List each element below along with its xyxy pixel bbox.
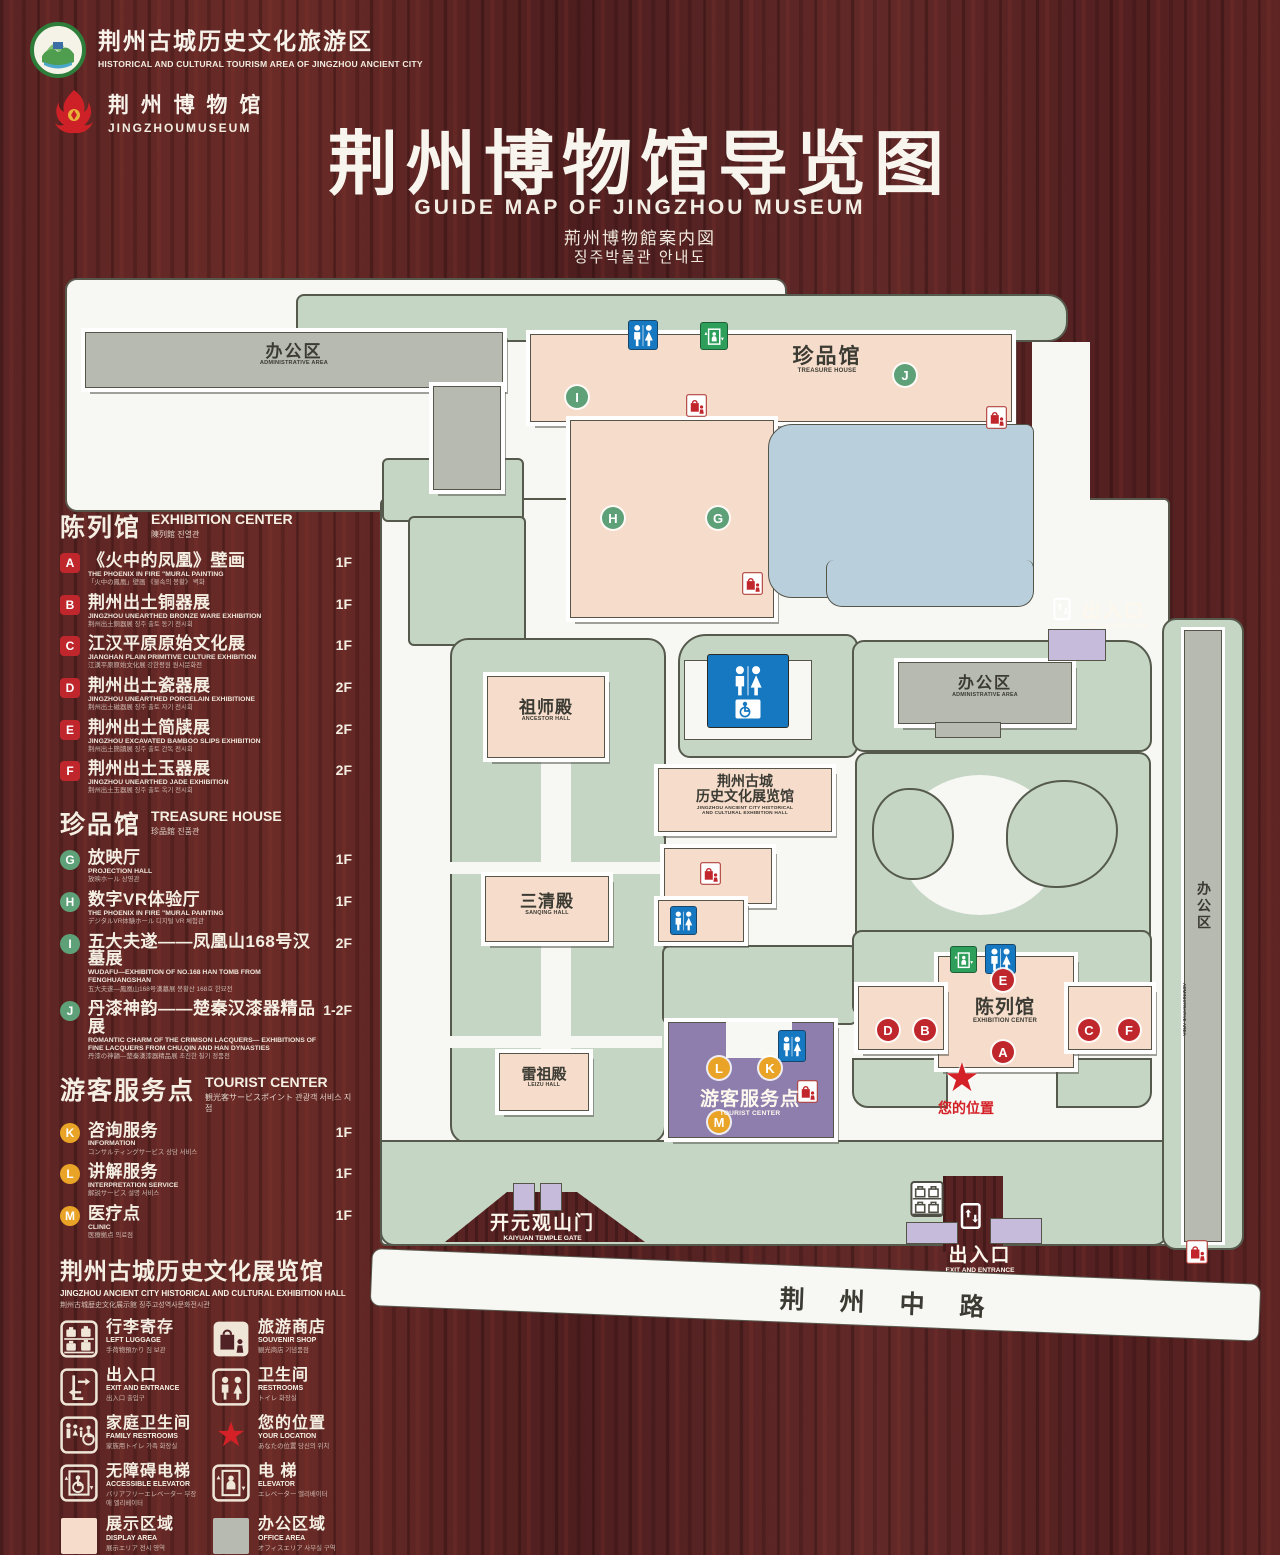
legend-row: F荆州出土玉器展JINGZHOU UNEARTHED JADE EXHIBITI… (60, 760, 352, 795)
legend-icon-label-en: DISPLAY AREA (106, 1535, 174, 1542)
legend-row-title-en: PROJECTION HALL (88, 868, 318, 876)
legend-icon-label-en: LEFT LUGGAGE (106, 1337, 174, 1344)
legend-row: K咨询服务INFORMATIONコンサルティングサービス 상담 서비스1F (60, 1122, 352, 1157)
legend-row-title: 江汉平原原始文化展 (88, 635, 318, 653)
exhibition-center-wing-right (1068, 986, 1152, 1050)
road-label: 荆 州 中 路 (779, 1279, 999, 1324)
legend-hall-title-sub: 荆州古城歴史文化展示館 징주고성역사문화전시관 (60, 1300, 352, 1310)
map-marker-A: A (992, 1041, 1014, 1063)
legend-icon-label-sub: エレベーター 엘리베이터 (258, 1489, 328, 1498)
exit-entrance-icon (60, 1368, 98, 1406)
souvenir-shop-icon (742, 572, 763, 595)
souvenir-shop-icon (1186, 1240, 1208, 1264)
tourism-area-logo: 荆州古城历史文化旅游区 HISTORICAL AND CULTURAL TOUR… (30, 22, 423, 78)
legend-icon-label-sub: 家族用トイレ 가족 화장실 (106, 1441, 191, 1450)
map-marker-J: J (894, 364, 916, 386)
legend-icon-label: 您的位置 (258, 1416, 329, 1433)
legend-row: B荆州出土铜器展JINGZHOU UNEARTHED BRONZE WARE E… (60, 594, 352, 629)
admin-mid-label-en: ADMINISTRATIVE AREA (899, 693, 1071, 699)
exit-entrance-icon (957, 1201, 987, 1231)
legend-row-text: 《火中的凤凰》壁画THE PHOENIX IN FIRE "MURAL PAIN… (80, 552, 318, 587)
legend-section-heading: 陈列馆EXHIBITION CENTER陳列館 진열관 (60, 508, 352, 544)
legend-row-title-sub: 「火中の鳳凰」壁画 《불속의 봉황》 벽화 (88, 579, 318, 587)
admin-building-right-strip: 办公区 ADMINISTRATIVE AREA (1184, 630, 1222, 1242)
legend-row-title: 放映厅 (88, 849, 318, 867)
elevator-icon (950, 946, 977, 973)
legend-row-floor: 2F (318, 935, 352, 951)
legend-icon-text: 行李寄存LEFT LUGGAGE手荷物預かり 짐 보관 (106, 1320, 174, 1355)
road: 荆 州 中 路 (370, 1248, 1262, 1342)
legend-icon-label-en: ACCESSIBLE ELEVATOR (106, 1481, 200, 1488)
legend-icon-label-en: FAMILY RESTROOMS (106, 1433, 191, 1440)
legend-icon-item: 电 梯ELEVATORエレベーター 엘리베이터 (212, 1464, 352, 1508)
legend-icon-item: ★您的位置YOUR LOCATIONあなたの位置 당신의 위치 (212, 1416, 352, 1454)
city-exhibition-hall-label-en2: AND CULTURAL EXHIBITION HALL (659, 811, 831, 816)
legend-row-title: 荆州出土玉器展 (88, 760, 318, 778)
office-area-icon (212, 1517, 250, 1555)
gate-label: 开元观山门 (455, 1208, 630, 1235)
garden-island (872, 788, 954, 880)
legend-row-title-sub: 医療拠点 의료점 (88, 1232, 318, 1240)
city-exhibition-hall-building: 荆州古城 历史文化展览馆 JINGZHOU ANCIENT CITY HISTO… (658, 768, 832, 832)
legend-icon-label: 电 梯 (258, 1464, 328, 1481)
exhibition-center-wing-left (858, 986, 944, 1050)
page-title-en: GUIDE MAP OF JINGZHOU MUSEUM (0, 196, 1280, 220)
legend-row-badge: F (60, 761, 80, 781)
legend-row-badge: D (60, 678, 80, 698)
ancestor-hall-label: 祖师殿 (488, 699, 604, 717)
legend-icon-label: 行李寄存 (106, 1320, 174, 1337)
exit-top-label: 出入口 (1082, 596, 1149, 623)
legend-row-text: 江汉平原原始文化展JIANGHAN PLAIN PRIMITIVE CULTUR… (80, 635, 318, 670)
legend-row-badge: E (60, 720, 80, 740)
left-luggage-icon (910, 1180, 944, 1218)
admin-building-top: 办公区 ADMINISTRATIVE AREA (85, 332, 503, 388)
legend-icon-text: 电 梯ELEVATORエレベーター 엘리베이터 (258, 1464, 328, 1499)
legend-icon-label: 卫生间 (258, 1368, 309, 1385)
legend-icon-item: 家庭卫生间FAMILY RESTROOMS家族用トイレ 가족 화장실 (60, 1416, 200, 1454)
page-title: 荆州博物馆导览图 (0, 108, 1280, 209)
display-area-icon (60, 1517, 98, 1555)
souvenir-shop-icon (686, 394, 707, 417)
legend-icon-label-en: ELEVATOR (258, 1481, 328, 1488)
legend-row-title-sub: 五大夫遂—鳳凰山168号漢墓展 봉황산 168호 한묘전 (88, 986, 318, 994)
tourism-area-name-zh: 荆州古城历史文化旅游区 (98, 22, 423, 56)
exhibition-center-label-en: EXHIBITION CENTER (940, 1018, 1070, 1024)
legend-icon-label: 出入口 (106, 1368, 179, 1385)
legend-row-floor: 1F (318, 893, 352, 909)
sanqing-hall-label: 三清殿 (486, 893, 608, 911)
legend-icon-label: 无障碍电梯 (106, 1464, 200, 1481)
legend-row: H数字VR体验厅THE PHOENIX IN FIRE "MURAL PAINT… (60, 891, 352, 926)
souvenir-shop-icon (212, 1320, 250, 1358)
legend-row-badge: I (60, 934, 80, 954)
map-marker-H: H (602, 507, 624, 529)
legend-row-title-sub: 荆州出土簡牘展 징주 출토 간독 전시회 (88, 746, 318, 754)
exhibition-center-label: 陈列馆 (940, 998, 1070, 1018)
admin-mid-label: 办公区 (899, 676, 1071, 693)
legend-icon-label-en: OFFICE AREA (258, 1535, 336, 1542)
admin-building-mid-step (935, 722, 1001, 738)
legend-row-title-en: JINGZHOU EXCAVATED BAMBOO SLIPS EXHIBITI… (88, 738, 318, 746)
legend-row: D荆州出土瓷器展JINGZHOU UNEARTHED PORCELAIN EXH… (60, 677, 352, 712)
admin-right-label-en: ADMINISTRATIVE AREA (1182, 983, 1187, 1036)
leizu-hall-label: 雷祖殿 (500, 1067, 588, 1083)
restrooms-icon (212, 1368, 250, 1406)
legend-icon-text: 旅游商店SOUVENIR SHOP観光商店 기념품점 (258, 1320, 326, 1355)
legend-row-title: 《火中的凤凰》壁画 (88, 552, 318, 570)
legend-icon-text: 办公区域OFFICE AREAオフィスエリア 사무실 구역 (258, 1517, 336, 1552)
legend-icon-label-en: SOUVENIR SHOP (258, 1337, 326, 1344)
legend-section-subtitle-block: TREASURE HOUSE珍品館 진품관 (151, 805, 282, 837)
souvenir-shop-icon (700, 862, 721, 885)
legend-row-floor: 1F (318, 1207, 352, 1223)
legend-icon-label-sub: 展示エリア 전시 영역 (106, 1543, 174, 1552)
admin-building-top-annex (433, 386, 501, 490)
legend-icon-text: 卫生间RESTROOMSトイレ 화장실 (258, 1368, 309, 1403)
elevator-icon (212, 1464, 250, 1502)
legend-section-heading: 珍品馆TREASURE HOUSE珍品館 진품관 (60, 805, 352, 841)
legend-row-title-sub: 荆州出土銅器展 징주 출토 동기 전시회 (88, 621, 318, 629)
legend-row-text: 数字VR体验厅THE PHOENIX IN FIRE "MURAL PAINTI… (80, 891, 318, 926)
legend-icon-label-sub: 観光商店 기념품점 (258, 1345, 326, 1354)
ancestor-hall-building: 祖师殿 ANCESTOR HALL (487, 676, 605, 758)
legend-icon-text: 展示区域DISPLAY AREA展示エリア 전시 영역 (106, 1517, 174, 1552)
admin-right-label: 办公区 (1194, 881, 1214, 932)
exit-entrance-icon (1050, 596, 1076, 622)
accessible-elevator-icon (60, 1464, 98, 1502)
legend-row-badge: L (60, 1164, 80, 1184)
leizu-hall-building: 雷祖殿 LEIZU HALL (499, 1053, 589, 1111)
legend-section-title-en: TREASURE HOUSE (151, 809, 282, 824)
legend-row-floor: 2F (318, 721, 352, 737)
legend-row-title-sub: 解説サービス 설명 서비스 (88, 1190, 318, 1198)
legend-section-subtitle-block: EXHIBITION CENTER陳列館 진열관 (151, 508, 293, 540)
legend-section-title: 珍品馆 (60, 805, 141, 841)
admin-building-mid: 办公区 ADMINISTRATIVE AREA (898, 662, 1072, 724)
map-marker-B: B (914, 1019, 936, 1041)
map-marker-E: E (992, 969, 1014, 991)
tourist-center-label: 游客服务点 (668, 1090, 832, 1110)
gate-label-en: KAIYUAN TEMPLE GATE (455, 1235, 630, 1242)
legend-row-title: 咨询服务 (88, 1122, 318, 1140)
legend-section-subtitle-block: TOURIST CENTER観光客サービスポイント 관광객 서비스 지점 (205, 1071, 352, 1114)
your-location-star-icon: ★ (216, 1418, 246, 1452)
legend-row-badge: M (60, 1206, 80, 1226)
sanqing-hall-building: 三清殿 SANQING HALL (485, 876, 609, 942)
map-marker-L: L (708, 1057, 730, 1079)
legend-icon-label: 展示区域 (106, 1517, 174, 1534)
legend-row-floor: 1F (318, 851, 352, 867)
legend-row-floor: 1F (318, 554, 352, 570)
legend-hall-title: 荆州古城历史文化展览馆JINGZHOU ANCIENT CITY HISTORI… (60, 1252, 352, 1310)
legend-row-text: 放映厅PROJECTION HALL放映ホール 상영관 (80, 849, 318, 884)
legend-icon-label: 办公区域 (258, 1517, 336, 1534)
restrooms-icon (628, 320, 658, 350)
legend-row-text: 丹漆神韵——楚秦汉漆器精品展ROMANTIC CHARM OF THE CRIM… (80, 1000, 318, 1061)
legend-section-title-en: TOURIST CENTER (205, 1075, 352, 1090)
legend-row-floor: 1-2F (318, 1002, 352, 1018)
map-marker-G: G (707, 507, 729, 529)
legend-row-text: 讲解服务INTERPRETATION SERVICE解説サービス 설명 서비스 (80, 1163, 318, 1198)
legend-icon-label-en: EXIT AND ENTRANCE (106, 1385, 179, 1392)
legend-row-text: 荆州出土瓷器展JINGZHOU UNEARTHED PORCELAIN EXHI… (80, 677, 318, 712)
legend-row-text: 荆州出土铜器展JINGZHOU UNEARTHED BRONZE WARE EX… (80, 594, 318, 629)
office-area-swatch (213, 1518, 249, 1554)
gate-pillar (513, 1183, 535, 1211)
sanqing-hall-label-en: SANQING HALL (486, 911, 608, 917)
path-right-channel (1032, 342, 1090, 624)
legend-row-title-en: CLINIC (88, 1224, 318, 1232)
legend-row-text: 医疗点CLINIC医療拠点 의료점 (80, 1205, 318, 1240)
legend-row-title: 数字VR体验厅 (88, 891, 318, 909)
map-marker-F: F (1118, 1019, 1140, 1041)
restrooms-icon (670, 906, 697, 935)
legend-row-badge: H (60, 892, 80, 912)
legend-icon-item: 行李寄存LEFT LUGGAGE手荷物預かり 짐 보관 (60, 1320, 200, 1358)
tourism-area-emblem-icon (30, 22, 86, 78)
legend-row-title: 荆州出土简牍展 (88, 719, 318, 737)
map-marker-K: K (759, 1057, 781, 1079)
legend-row: C江汉平原原始文化展JIANGHAN PLAIN PRIMITIVE CULTU… (60, 635, 352, 670)
legend-section-title-sub: 珍品館 진품관 (151, 826, 282, 837)
green-mid-band (662, 945, 858, 1025)
accessible-restroom-icon (735, 699, 761, 719)
legend-row-title-en: JINGZHOU UNEARTHED PORCELAIN EXHIBITIONE (88, 696, 318, 704)
legend-row-title-sub: コンサルティングサービス 상담 서비스 (88, 1149, 318, 1157)
legend-row-title-sub: 江漢平原原始文化展 강한평원 원시문화전 (88, 662, 318, 670)
legend-icon-label-sub: 手荷物預かり 짐 보관 (106, 1345, 174, 1354)
legend-icon-label: 家庭卫生间 (106, 1416, 191, 1433)
legend-row-badge: A (60, 553, 80, 573)
legend-row-title-en: THE PHOENIX IN FIRE "MURAL PAINTING (88, 571, 318, 579)
legend-icon-item: 卫生间RESTROOMSトイレ 화장실 (212, 1368, 352, 1406)
legend-row-text: 五大夫遂——凤凰山168号汉墓展WUDAFU—EXHIBITION OF NO.… (80, 933, 318, 994)
legend-icon-label-sub: 出入口 출입구 (106, 1393, 179, 1402)
restrooms-icon (728, 663, 768, 697)
admin-top-label-en: ADMINISTRATIVE AREA (86, 361, 502, 367)
pond-south (826, 560, 1034, 607)
exit-top-label-en: EXIT AND ENTRANCE (1082, 623, 1149, 630)
restrooms-icon (778, 1030, 806, 1062)
legend-icon-label-en: YOUR LOCATION (258, 1433, 329, 1440)
exit-bottom: 出入口 EXIT AND ENTRANCE (900, 1240, 1060, 1274)
legend-row-title-sub: 丹漆の神韻—楚秦漢漆器精品展 초진한 칠기 정품전 (88, 1053, 318, 1061)
legend-icon-text: 出入口EXIT AND ENTRANCE出入口 출입구 (106, 1368, 179, 1403)
legend-icon-label-sub: トイレ 화장실 (258, 1393, 309, 1402)
legend-icon-label-sub: オフィスエリア 사무실 구역 (258, 1543, 336, 1552)
treasure-house-label: 珍品馆 (762, 346, 892, 368)
courtyard-path (450, 1036, 662, 1048)
leizu-hall-label-en: LEIZU HALL (500, 1083, 588, 1089)
legend-section-title: 游客服务点 (60, 1071, 195, 1107)
page-title-ko: 징주박물관 안내도 (0, 246, 1280, 267)
legend-panel: 陈列馆EXHIBITION CENTER陳列館 진열관A《火中的凤凰》壁画THE… (60, 498, 352, 1555)
green-connector-2 (408, 516, 526, 646)
legend-row-title-en: THE PHOENIX IN FIRE "MURAL PAINTING (88, 910, 318, 918)
legend-icon-item: 办公区域OFFICE AREAオフィスエリア 사무실 구역 (212, 1517, 352, 1555)
family-restrooms-icon (60, 1416, 98, 1454)
legend-icon-item: 展示区域DISPLAY AREA展示エリア 전시 영역 (60, 1517, 200, 1555)
souvenir-shop-icon (986, 406, 1007, 429)
legend-row-title: 医疗点 (88, 1205, 318, 1223)
legend-icon-label-en: RESTROOMS (258, 1385, 309, 1392)
legend-row-floor: 1F (318, 596, 352, 612)
legend-section-title: 陈列馆 (60, 508, 141, 544)
legend-row-title-en: INFORMATION (88, 1140, 318, 1148)
legend-row: L讲解服务INTERPRETATION SERVICE解説サービス 설명 서비스… (60, 1163, 352, 1198)
exit-top: 出入口 EXIT AND ENTRANCE (1050, 596, 1149, 630)
legend-hall-title-en: JINGZHOU ANCIENT CITY HISTORICAL AND CUL… (60, 1289, 352, 1298)
legend-row-badge: G (60, 850, 80, 870)
legend-row-badge: B (60, 595, 80, 615)
exit-bottom-label: 出入口 (900, 1240, 1060, 1267)
restroom-building (707, 654, 789, 728)
legend-row-title: 丹漆神韵——楚秦汉漆器精品展 (88, 1000, 318, 1036)
city-exhibition-hall-label2: 历史文化展览馆 (659, 789, 831, 804)
legend-icon-text: 无障碍电梯ACCESSIBLE ELEVATORバリアフリーエレベーター 무장애… (106, 1464, 200, 1508)
courtyard-path (450, 862, 662, 874)
your-location-star-icon: ★ (944, 1058, 980, 1098)
legend-row-title-sub: デジタルVR体験ホール 디지털 VR 체험관 (88, 918, 318, 926)
legend-row-floor: 1F (318, 637, 352, 653)
tourist-center-label-en: TOURIST CENTER (668, 1110, 832, 1117)
city-exhibition-hall-label: 荆州古城 (659, 774, 831, 789)
legend-row-title-en: JINGZHOU UNEARTHED BRONZE WARE EXHIBITIO… (88, 613, 318, 621)
your-location-icon: ★ (212, 1416, 250, 1454)
elevator-icon (700, 322, 728, 350)
legend-row-badge: C (60, 636, 80, 656)
treasure-house-label-en: TREASURE HOUSE (762, 368, 892, 374)
legend-hall-title-zh: 荆州古城历史文化展览馆 (60, 1252, 352, 1286)
legend-row-title-en: WUDAFU—EXHIBITION OF NO.168 HAN TOMB FRO… (88, 969, 318, 985)
legend-row-title: 荆州出土铜器展 (88, 594, 318, 612)
legend-row-text: 荆州出土玉器展JINGZHOU UNEARTHED JADE EXHIBITIO… (80, 760, 318, 795)
legend-section-title-sub: 観光客サービスポイント 관광객 서비스 지점 (205, 1092, 352, 1114)
courtyard-path (541, 756, 571, 878)
legend-row-text: 荆州出土简牍展JINGZHOU EXCAVATED BAMBOO SLIPS E… (80, 719, 318, 754)
entrance-gate-structure (1048, 629, 1106, 661)
legend-row: E荆州出土简牍展JINGZHOU EXCAVATED BAMBOO SLIPS … (60, 719, 352, 754)
legend-row-title-sub: 荆州出土磁器展 징주 출토 자기 전시회 (88, 704, 318, 712)
display-area-swatch (61, 1518, 97, 1554)
left-luggage-icon (60, 1320, 98, 1358)
legend-row: G放映厅PROJECTION HALL放映ホール 상영관1F (60, 849, 352, 884)
legend-row: I五大夫遂——凤凰山168号汉墓展WUDAFU—EXHIBITION OF NO… (60, 933, 352, 994)
legend-section-heading: 游客服务点TOURIST CENTER観光客サービスポイント 관광객 서비스 지… (60, 1071, 352, 1114)
legend-row-floor: 2F (318, 679, 352, 695)
legend-icon-item: 旅游商店SOUVENIR SHOP観光商店 기념품점 (212, 1320, 352, 1358)
map-marker-D: D (877, 1019, 899, 1041)
legend-row-floor: 2F (318, 762, 352, 778)
your-location-label: 您的位置 (926, 1098, 1006, 1118)
legend-row-floor: 1F (318, 1165, 352, 1181)
legend-row-title-en: ROMANTIC CHARM OF THE CRIMSON LACQUERS— … (88, 1037, 318, 1053)
admin-top-label: 办公区 (86, 343, 502, 361)
legend-icon-label-sub: バリアフリーエレベーター 무장애 엘리베이터 (106, 1489, 200, 1507)
legend-row: M医疗点CLINIC医療拠点 의료점1F (60, 1205, 352, 1240)
map-marker-C: C (1078, 1019, 1100, 1041)
legend-row: A《火中的凤凰》壁画THE PHOENIX IN FIRE "MURAL PAI… (60, 552, 352, 587)
legend-row-floor: 1F (318, 1124, 352, 1140)
legend-row-badge: J (60, 1001, 80, 1021)
legend-icon-text: 您的位置YOUR LOCATIONあなたの位置 당신의 위치 (258, 1416, 329, 1451)
ancestor-hall-label-en: ANCESTOR HALL (488, 717, 604, 723)
legend-icon-label: 旅游商店 (258, 1320, 326, 1337)
legend-icon-grid: 行李寄存LEFT LUGGAGE手荷物預かり 짐 보관旅游商店SOUVENIR … (60, 1320, 352, 1555)
legend-icon-label-sub: あなたの位置 당신의 위치 (258, 1441, 329, 1450)
tourism-area-name-en: HISTORICAL AND CULTURAL TOURISM AREA OF … (98, 59, 423, 69)
legend-row-title: 五大夫遂——凤凰山168号汉墓展 (88, 933, 318, 969)
legend-icon-item: 出入口EXIT AND ENTRANCE出入口 출입구 (60, 1368, 200, 1406)
legend-row-badge: K (60, 1123, 80, 1143)
gate-label-block: 开元观山门 KAIYUAN TEMPLE GATE (455, 1208, 630, 1242)
legend-row-title: 荆州出土瓷器展 (88, 677, 318, 695)
legend-row-title: 讲解服务 (88, 1163, 318, 1181)
legend-row: J丹漆神韵——楚秦汉漆器精品展ROMANTIC CHARM OF THE CRI… (60, 1000, 352, 1061)
legend-row-title-sub: 放映ホール 상영관 (88, 876, 318, 884)
legend-icon-item: 无障碍电梯ACCESSIBLE ELEVATORバリアフリーエレベーター 무장애… (60, 1464, 200, 1508)
legend-section-title-en: EXHIBITION CENTER (151, 512, 293, 527)
legend-icon-text: 家庭卫生间FAMILY RESTROOMS家族用トイレ 가족 화장실 (106, 1416, 191, 1451)
legend-row-title-sub: 荆州出土玉器展 징주 출토 옥기 전시회 (88, 787, 318, 795)
map-marker-I: I (566, 386, 588, 408)
legend-section-title-sub: 陳列館 진열관 (151, 529, 293, 540)
legend-row-text: 咨询服务INFORMATIONコンサルティングサービス 상담 서비스 (80, 1122, 318, 1157)
gate-pillar (540, 1183, 562, 1211)
